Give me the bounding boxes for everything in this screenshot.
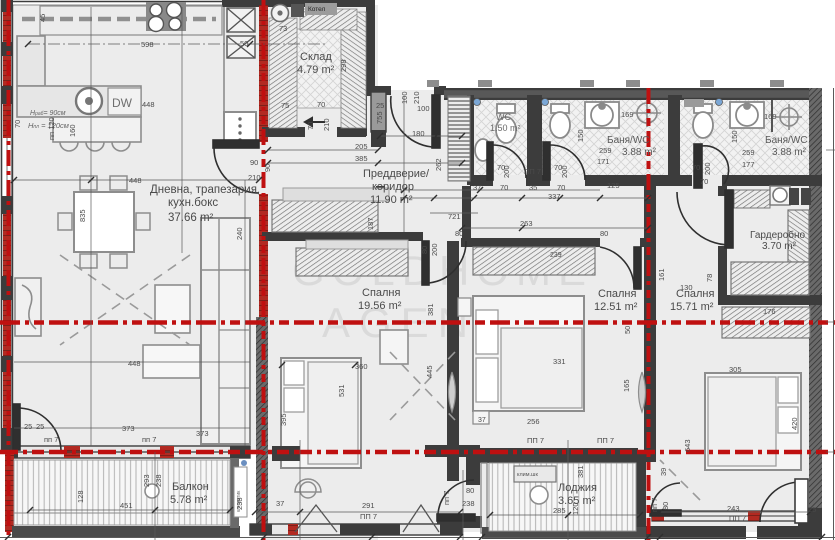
svg-text:15.71 m²: 15.71 m²: [670, 301, 714, 313]
svg-text:259: 259: [742, 148, 755, 157]
svg-text:25: 25: [376, 101, 384, 110]
svg-text:180: 180: [412, 129, 425, 138]
svg-text:262: 262: [434, 158, 443, 171]
svg-text:90: 90: [263, 164, 272, 172]
svg-text:293: 293: [142, 474, 151, 487]
svg-text:256: 256: [527, 417, 540, 426]
svg-text:Баня/WC: Баня/WC: [607, 135, 650, 146]
svg-text:80: 80: [600, 229, 608, 238]
svg-text:240: 240: [235, 227, 244, 240]
svg-text:Баня/WC: Баня/WC: [765, 135, 808, 146]
svg-text:381: 381: [426, 303, 435, 316]
svg-text:3.70 m²: 3.70 m²: [762, 241, 797, 252]
svg-text:373: 373: [196, 429, 209, 438]
svg-text:169: 169: [621, 110, 634, 119]
svg-text:12.51 m²: 12.51 m²: [594, 301, 638, 313]
svg-text:150: 150: [576, 129, 585, 142]
svg-text:Лоджия: Лоджия: [558, 482, 597, 494]
svg-text:Котел: Котел: [308, 6, 326, 13]
svg-text:45: 45: [38, 14, 47, 22]
svg-text:25: 25: [808, 505, 816, 514]
svg-text:721: 721: [448, 212, 461, 221]
svg-text:285: 285: [553, 506, 566, 515]
svg-text:Спалня: Спалня: [598, 288, 637, 300]
svg-text:259: 259: [599, 146, 612, 155]
svg-text:пп 7: пп 7: [142, 435, 156, 444]
svg-text:125: 125: [607, 181, 620, 190]
svg-text:238: 238: [235, 497, 244, 510]
svg-text:420: 420: [790, 417, 799, 430]
svg-text:448: 448: [128, 359, 141, 368]
svg-text:291: 291: [362, 501, 375, 510]
svg-text:243: 243: [727, 504, 740, 513]
svg-text:448: 448: [142, 100, 155, 109]
svg-text:451: 451: [120, 501, 133, 510]
svg-text:100: 100: [417, 104, 430, 113]
svg-text:643: 643: [683, 439, 692, 452]
svg-text:210: 210: [248, 173, 261, 182]
svg-text:Спалня: Спалня: [362, 287, 401, 299]
svg-text:298: 298: [339, 59, 348, 72]
svg-text:Гардеробно: Гардеробно: [750, 229, 806, 241]
svg-text:373: 373: [122, 424, 135, 433]
svg-text:305: 305: [729, 365, 742, 374]
svg-text:37: 37: [478, 417, 486, 424]
svg-text:755: 755: [375, 111, 384, 124]
svg-text:70: 70: [306, 122, 315, 130]
svg-text:337: 337: [548, 192, 561, 201]
svg-text:ПП 7: ПП 7: [524, 167, 541, 176]
svg-text:50: 50: [240, 39, 248, 48]
svg-text:коридор: коридор: [372, 181, 414, 193]
svg-text:37: 37: [473, 183, 481, 192]
svg-text:176: 176: [763, 307, 776, 316]
svg-text:ПП 7: ПП 7: [729, 514, 746, 523]
svg-text:кухн.бокс: кухн.бокс: [168, 197, 218, 209]
svg-text:200: 200: [703, 162, 712, 175]
svg-text:50: 50: [623, 326, 632, 334]
svg-text:клим.шк: клим.шк: [517, 472, 538, 478]
svg-text:70: 70: [500, 183, 508, 192]
svg-text:11.90 m²: 11.90 m²: [370, 194, 413, 206]
svg-text:238: 238: [462, 499, 475, 508]
svg-text:80: 80: [420, 246, 429, 254]
svg-text:80: 80: [455, 229, 463, 238]
svg-text:пп 120: пп 120: [47, 117, 56, 140]
svg-text:210: 210: [412, 91, 421, 104]
svg-text:171: 171: [597, 157, 610, 166]
svg-text:WC: WC: [496, 112, 511, 122]
svg-text:75: 75: [281, 101, 289, 110]
svg-text:ПП 7: ПП 7: [360, 512, 377, 521]
svg-text:130: 130: [680, 283, 693, 292]
svg-text:DW: DW: [112, 96, 133, 110]
svg-text:160: 160: [68, 124, 77, 137]
svg-text:169: 169: [764, 112, 777, 121]
svg-text:70: 70: [557, 183, 565, 192]
svg-text:39: 39: [659, 468, 668, 476]
svg-text:331: 331: [553, 357, 566, 366]
svg-text:263: 263: [520, 219, 533, 228]
svg-text:Склад: Склад: [300, 51, 332, 63]
svg-text:3.88 m²: 3.88 m²: [622, 147, 657, 158]
svg-text:пп 7: пп 7: [442, 491, 451, 505]
svg-text:239: 239: [550, 252, 562, 259]
svg-text:161: 161: [657, 268, 666, 281]
svg-text:37.66 m²: 37.66 m²: [168, 212, 214, 224]
svg-text:Дневна, трапезария,: Дневна, трапезария,: [150, 184, 260, 196]
svg-text:37: 37: [276, 499, 284, 508]
svg-text:381: 381: [576, 465, 585, 478]
svg-text:78: 78: [705, 274, 714, 282]
svg-text:177: 177: [742, 160, 755, 169]
svg-text:128: 128: [76, 490, 85, 503]
svg-text:835: 835: [78, 209, 87, 222]
svg-text:210: 210: [322, 118, 331, 131]
svg-text:Преддверие/: Преддверие/: [363, 168, 430, 180]
svg-text:531: 531: [337, 384, 346, 397]
svg-text:пп 7: пп 7: [650, 498, 659, 512]
svg-text:Hраб= 90см: Hраб= 90см: [30, 110, 66, 117]
svg-text:165: 165: [622, 379, 631, 392]
svg-text:100: 100: [400, 91, 409, 104]
svg-text:395: 395: [279, 413, 288, 426]
svg-text:5.78 m²: 5.78 m²: [170, 494, 208, 506]
svg-text:200: 200: [502, 165, 511, 178]
svg-text:598: 598: [141, 40, 154, 49]
svg-text:1.50 m²: 1.50 m²: [490, 123, 521, 133]
svg-text:150: 150: [730, 130, 739, 143]
svg-text:187: 187: [366, 217, 375, 230]
svg-text:пп 7: пп 7: [44, 435, 58, 444]
svg-text:73: 73: [279, 24, 287, 33]
svg-text:70: 70: [317, 100, 325, 109]
svg-text:445: 445: [425, 365, 434, 378]
svg-text:360: 360: [355, 362, 368, 371]
svg-text:448: 448: [129, 176, 142, 185]
svg-text:90: 90: [250, 158, 258, 167]
svg-text:200: 200: [430, 243, 439, 256]
svg-text:238: 238: [154, 474, 163, 487]
svg-text:80: 80: [661, 502, 670, 510]
svg-text:70: 70: [700, 177, 708, 186]
svg-text:80: 80: [466, 486, 474, 495]
svg-text:ПП 7: ПП 7: [527, 436, 544, 445]
svg-text:4.79 m²: 4.79 m²: [297, 64, 335, 76]
svg-text:200: 200: [560, 165, 569, 178]
svg-text:Балкон: Балкон: [172, 481, 209, 493]
svg-text:70: 70: [13, 120, 22, 128]
svg-text:35: 35: [529, 183, 537, 192]
svg-text:120: 120: [571, 502, 580, 515]
svg-text:385: 385: [355, 154, 368, 163]
svg-text:19.56 m²: 19.56 m²: [358, 300, 402, 312]
svg-text:25: 25: [24, 422, 32, 431]
svg-text:205: 205: [355, 142, 368, 151]
svg-text:ПП 7: ПП 7: [597, 436, 614, 445]
svg-text:25: 25: [36, 422, 44, 431]
svg-text:3.88 m²: 3.88 m²: [772, 147, 807, 158]
svg-text:70: 70: [692, 163, 700, 172]
